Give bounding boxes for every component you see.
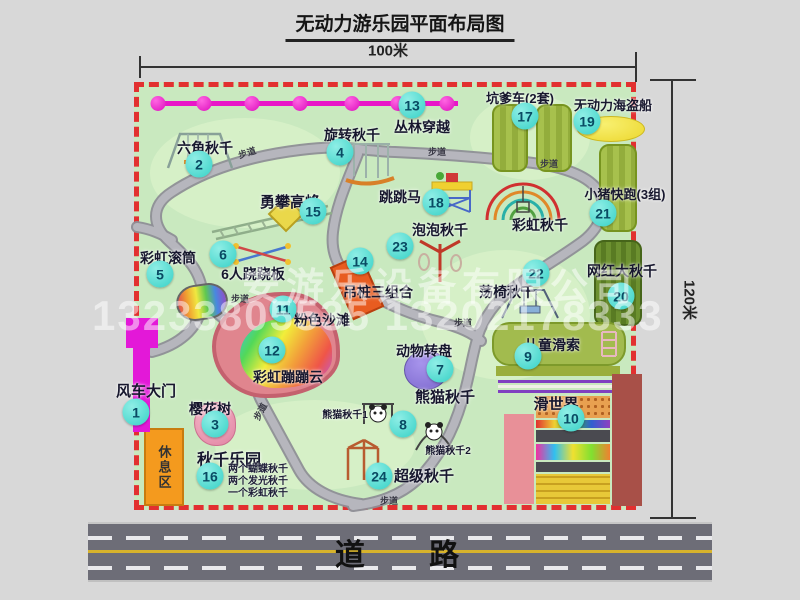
rest-area: 休息区	[144, 428, 184, 506]
label-seesaw: 6人跷跷板	[221, 264, 285, 284]
swing-park-note: 一个彩虹秋千	[228, 488, 288, 500]
label-super-swing: 超级秋千	[394, 465, 454, 486]
badge-5: 5	[147, 261, 174, 288]
bubble-swing-icon	[412, 236, 468, 288]
badge-8: 8	[390, 411, 417, 438]
badge-21: 21	[590, 200, 617, 227]
chain-dot	[151, 96, 166, 111]
road: 道 路	[88, 522, 712, 582]
label-panda-swing: 熊猫秋千	[415, 386, 475, 407]
width-dimension-label: 100米	[368, 40, 408, 61]
trail-label: 步道	[231, 292, 249, 305]
slide-band-yellow	[536, 474, 610, 504]
label-panda-swing-1: 熊猫秋千1	[322, 406, 368, 421]
height-dim-tick-bottom	[650, 517, 696, 519]
label-bubble-swing: 泡泡秋千	[412, 220, 468, 240]
badge-11: 11	[270, 296, 297, 323]
label-hanging-piles: 吊桩三组合	[343, 282, 413, 302]
slide-world-icon	[496, 366, 642, 506]
screenshot-stage: 无动力游乐园平面布局图 100米 120米 步道 步道 步道 步道 步道 步道 …	[0, 0, 800, 600]
chain-dot	[197, 96, 212, 111]
width-dim-tick-right	[635, 52, 637, 82]
badge-10: 10	[558, 405, 585, 432]
badge-7: 7	[427, 356, 454, 383]
label-pink-beach: 粉色沙滩	[294, 310, 350, 330]
height-dimension-line	[671, 80, 673, 518]
slide-platform	[496, 366, 620, 376]
slide-strip-pink	[504, 414, 534, 504]
badge-16: 16	[197, 463, 224, 490]
badge-15: 15	[300, 198, 327, 225]
chain-dot	[293, 96, 308, 111]
badge-19: 19	[574, 108, 601, 135]
badge-14: 14	[347, 248, 374, 275]
badge-2: 2	[186, 151, 213, 178]
width-dimension-line	[140, 66, 637, 68]
badge-4: 4	[327, 139, 354, 166]
badge-22: 22	[523, 260, 550, 287]
badge-23: 23	[387, 233, 414, 260]
trail-label: 步道	[428, 145, 446, 158]
rest-area-label: 休息区	[155, 445, 174, 490]
chain-dot	[440, 96, 455, 111]
label-windmill-gate: 风车大门	[116, 380, 176, 401]
zipline-cable	[498, 380, 618, 383]
badge-20: 20	[608, 283, 635, 310]
badge-17: 17	[512, 103, 539, 130]
badge-1: 1	[123, 399, 150, 426]
height-dimension-label: 120米	[680, 280, 701, 320]
slide-band-rainbow	[536, 444, 610, 460]
badge-13: 13	[399, 92, 426, 119]
chain-dot	[345, 96, 360, 111]
width-dim-tick-left	[139, 56, 141, 78]
height-dim-tick-top	[650, 79, 696, 81]
zipline-cable	[498, 385, 618, 388]
badge-24: 24	[366, 463, 393, 490]
swing-park-note: 两个发光秋千	[228, 476, 288, 488]
label-big-swing: 网红大秋千	[587, 261, 657, 281]
trail-label: 步道	[380, 494, 398, 507]
label-jumping-horse: 跳跳马	[379, 187, 421, 207]
trail-label: 步道	[540, 157, 558, 170]
windmill-gate-icon	[126, 318, 158, 348]
badge-9: 9	[515, 343, 542, 370]
swing-park-notes: 两个蝴蝶秋千 两个发光秋千 一个彩虹秋千	[228, 464, 288, 500]
label-panda-swing-2: 熊猫秋千2	[425, 442, 471, 457]
label-jungle-crossing: 丛林穿越	[394, 117, 450, 137]
badge-18: 18	[423, 189, 450, 216]
page-title: 无动力游乐园平面布局图	[285, 8, 514, 42]
badge-6: 6	[210, 241, 237, 268]
swing-park-note: 两个蝴蝶秋千	[228, 464, 288, 476]
label-chair-swing: 荡椅秋千	[479, 282, 535, 302]
zipline-tower-icon	[598, 328, 620, 362]
road-label: 道 路	[335, 530, 465, 574]
label-rainbow-swing: 彩虹秋千	[512, 215, 568, 235]
badge-12: 12	[259, 337, 286, 364]
label-rainbow-cloud: 彩虹蹦蹦云	[253, 367, 323, 387]
slide-band-dark	[536, 462, 610, 472]
slide-band-dark	[536, 430, 610, 442]
slide-strip-maroon	[612, 374, 642, 506]
badge-3: 3	[202, 411, 229, 438]
chain-dot	[245, 96, 260, 111]
trail-label: 步道	[454, 316, 472, 329]
